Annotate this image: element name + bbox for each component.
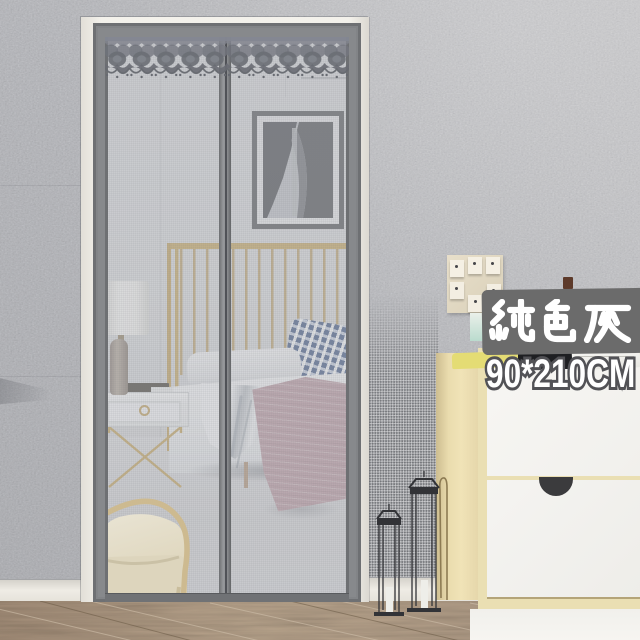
svg-text:90*210CM: 90*210CM <box>486 353 635 396</box>
